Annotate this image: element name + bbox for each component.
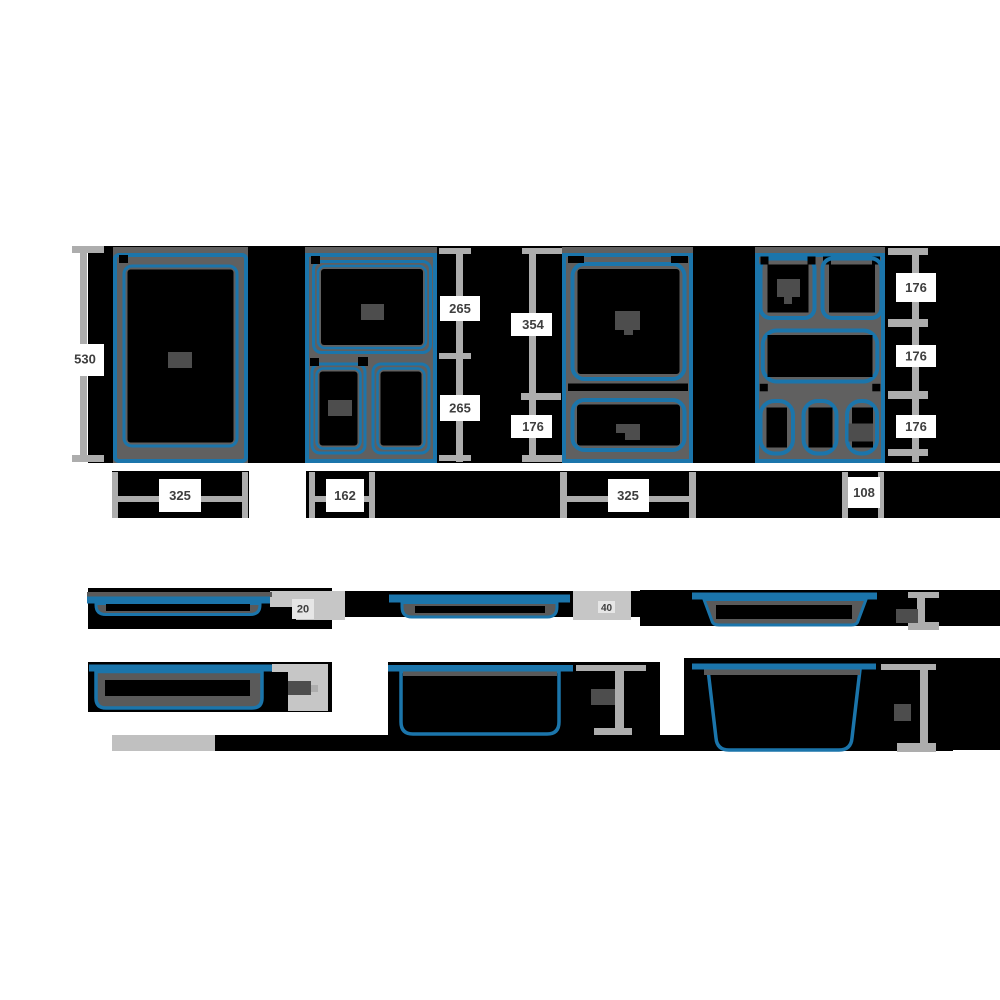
svg-text:265: 265 <box>449 401 471 416</box>
svg-text:325: 325 <box>617 488 639 503</box>
svg-text:162: 162 <box>334 488 356 503</box>
svg-text:265: 265 <box>449 301 471 316</box>
svg-text:530: 530 <box>74 352 96 367</box>
svg-text:40: 40 <box>601 603 613 614</box>
svg-text:108: 108 <box>853 485 875 500</box>
svg-text:176: 176 <box>905 349 927 364</box>
svg-text:176: 176 <box>905 419 927 434</box>
svg-text:20: 20 <box>297 604 309 616</box>
svg-text:354: 354 <box>522 317 544 332</box>
svg-text:325: 325 <box>169 488 191 503</box>
svg-text:176: 176 <box>522 419 544 434</box>
svg-text:176: 176 <box>905 280 927 295</box>
